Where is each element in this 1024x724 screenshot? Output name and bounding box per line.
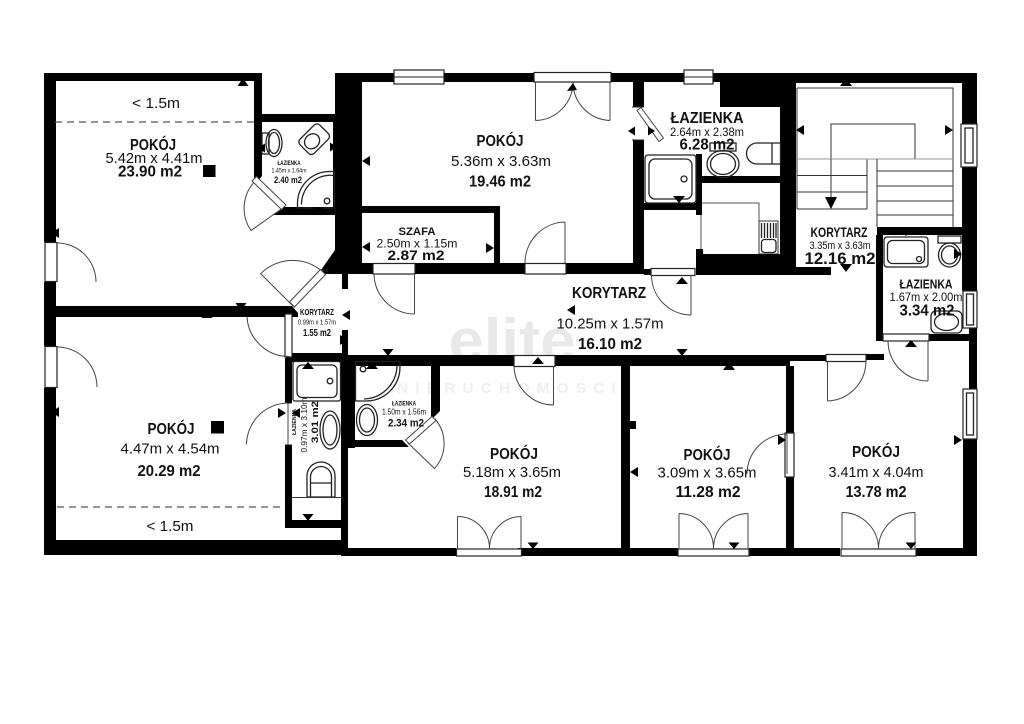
svg-text:KORYTARZ: KORYTARZ [811, 225, 868, 240]
svg-text:1.50m x 1.56m: 1.50m x 1.56m [382, 408, 426, 417]
svg-text:3.09m x 3.65m: 3.09m x 3.65m [658, 465, 757, 482]
svg-text:3.34 m2: 3.34 m2 [900, 303, 955, 320]
svg-text:POKÓJ: POKÓJ [148, 419, 195, 438]
svg-text:< 1.5m: < 1.5m [132, 95, 180, 112]
svg-text:KORYTARZ: KORYTARZ [572, 285, 646, 302]
svg-text:1.55 m2: 1.55 m2 [303, 328, 331, 339]
svg-text:23.90 m2: 23.90 m2 [118, 164, 182, 181]
svg-text:20.29 m2: 20.29 m2 [138, 463, 201, 480]
svg-text:2.87 m2: 2.87 m2 [388, 247, 445, 263]
svg-text:ŁAZIENKA: ŁAZIENKA [278, 160, 301, 167]
svg-text:ŁAZIENKA: ŁAZIENKA [392, 401, 416, 408]
svg-text:NIERUCHOMOŚCI: NIERUCHOMOŚCI [397, 379, 623, 397]
svg-text:11.28 m2: 11.28 m2 [676, 484, 741, 501]
svg-text:0.99m x 1.57m: 0.99m x 1.57m [298, 320, 336, 327]
svg-text:1.45m x 1.64m: 1.45m x 1.64m [272, 168, 307, 175]
svg-text:13.78 m2: 13.78 m2 [846, 484, 907, 501]
svg-text:KORYTARZ: KORYTARZ [300, 307, 334, 317]
svg-text:5.36m x 3.63m: 5.36m x 3.63m [451, 153, 551, 170]
svg-text:SZAFA: SZAFA [399, 226, 436, 238]
svg-text:0.97m x 3.10m: 0.97m x 3.10m [299, 398, 309, 453]
svg-text:19.46 m2: 19.46 m2 [469, 174, 531, 191]
svg-text:18.91 m2: 18.91 m2 [484, 484, 542, 501]
svg-text:6.28 m2: 6.28 m2 [680, 137, 735, 154]
svg-text:< 1.5m: < 1.5m [147, 518, 194, 535]
svg-text:3.41m x 4.04m: 3.41m x 4.04m [829, 464, 924, 481]
svg-text:4.47m x 4.54m: 4.47m x 4.54m [121, 441, 220, 458]
svg-text:2.40 m2: 2.40 m2 [274, 175, 302, 186]
svg-text:POKÓJ: POKÓJ [490, 444, 538, 463]
svg-text:16.10 m2: 16.10 m2 [578, 336, 642, 353]
svg-text:POKÓJ: POKÓJ [852, 442, 900, 461]
svg-text:2.34 m2: 2.34 m2 [388, 418, 424, 430]
svg-text:3.01 m2: 3.01 m2 [310, 401, 321, 443]
svg-text:10.25m x 1.57m: 10.25m x 1.57m [557, 316, 664, 333]
svg-text:12.16 m2: 12.16 m2 [805, 250, 876, 268]
svg-text:POKÓJ: POKÓJ [684, 445, 731, 464]
svg-text:5.18m x 3.65m: 5.18m x 3.65m [463, 464, 561, 481]
svg-text:POKÓJ: POKÓJ [477, 131, 524, 150]
